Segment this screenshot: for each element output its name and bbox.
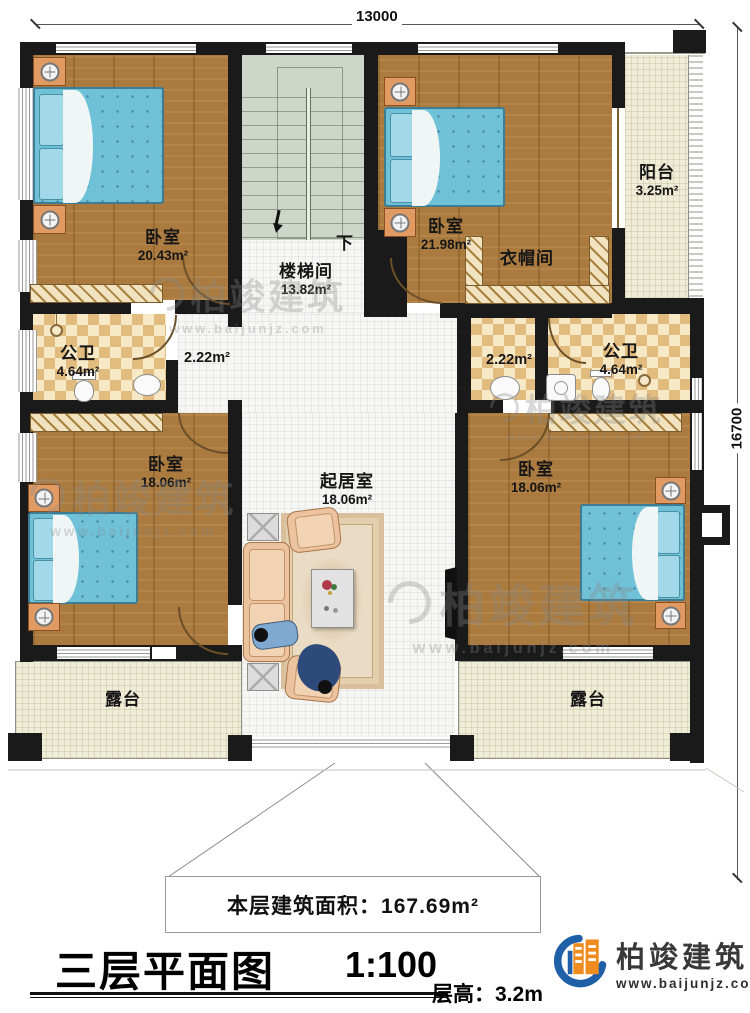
lamp-icon <box>35 489 54 508</box>
nightstand <box>33 57 66 86</box>
side-table <box>247 663 279 691</box>
window-top-left <box>56 44 196 53</box>
door-bathroom-left <box>133 315 177 360</box>
label-corridor-left: 2.22m² <box>184 350 230 367</box>
nightstand <box>384 208 416 237</box>
room-name: 楼梯间 <box>279 262 333 282</box>
wall-hall-right <box>457 313 471 413</box>
room-name: 露台 <box>570 690 606 710</box>
pillow <box>657 511 680 554</box>
room-name: 卧室 <box>141 455 191 475</box>
room-name: 公卫 <box>57 344 100 364</box>
lamp-icon <box>35 608 54 627</box>
nightstand <box>655 602 686 629</box>
balcony-sliding-door <box>617 108 619 228</box>
lamp-icon <box>391 82 410 101</box>
table-deco <box>324 606 329 611</box>
window-bottom-right <box>563 647 653 659</box>
label-bedroom-top-right: 卧室 21.98m² <box>421 217 471 253</box>
toilet-left-bowl <box>74 380 94 402</box>
room-area: 4.64m² <box>57 364 100 380</box>
label-balcony: 阳台 3.25m² <box>636 163 679 199</box>
lamp-icon <box>40 210 59 229</box>
lamp-icon <box>661 606 680 625</box>
company-website: www.baijunjz.com <box>616 976 750 991</box>
wall-bathleft-bottom <box>20 400 178 413</box>
window-left-4 <box>16 433 37 482</box>
floor-plan: 卧室 20.43m² 楼梯间 13.82m² 下 卧室 21.98m² 衣帽间 … <box>0 0 750 1013</box>
floor-area-box: 本层建筑面积：167.69m² <box>165 876 541 933</box>
room-area: 2.22m² <box>486 352 532 369</box>
wardrobe-bedroomtl <box>30 284 163 303</box>
sheet-fold <box>412 110 440 206</box>
balcony-corner-post <box>673 30 706 53</box>
label-corridor-right: 2.22m² <box>486 352 532 369</box>
room-name: 卧室 <box>421 217 471 237</box>
bed-bottom-right <box>580 504 685 601</box>
wall-under-balcony <box>612 298 704 314</box>
title-underline <box>30 992 448 998</box>
threshold-bottom-left <box>152 647 176 659</box>
window-right <box>692 378 702 470</box>
wall-bedroombl-right-b <box>228 650 242 661</box>
lamp-icon <box>391 213 410 232</box>
wardrobe-bedroombl <box>30 413 163 432</box>
pillow <box>39 94 64 146</box>
armchair-cushion <box>294 513 336 549</box>
company-name: 柏竣建筑 <box>616 934 750 976</box>
room-area: 21.98m² <box>421 237 471 253</box>
lamp-icon <box>40 62 59 81</box>
nightstand <box>28 484 60 512</box>
floor-area-text: 本层建筑面积：167.69m² <box>227 890 479 920</box>
room-area: 3.25m² <box>636 183 679 199</box>
toilet-right-bowl <box>592 377 610 401</box>
company-logo: 柏竣建筑 www.baijunjz.com <box>548 933 750 991</box>
room-area: 18.06m² <box>320 492 374 508</box>
room-area: 4.64m² <box>600 362 643 378</box>
stair-arrow-head <box>271 223 283 234</box>
pillow <box>39 148 64 200</box>
wall-bedroomtr-right-a <box>612 55 625 108</box>
washing-machine-drum <box>554 381 568 395</box>
balcony-right-wall <box>688 55 703 300</box>
nightstand <box>28 603 60 631</box>
nightstand <box>33 205 66 234</box>
wall-bathright-bottom-a <box>457 400 503 413</box>
plan-scale: 1:100 <box>345 944 437 986</box>
label-bedroom-top-left: 卧室 20.43m² <box>138 228 188 264</box>
dimension-height: 16700 <box>728 404 745 454</box>
window-top-right <box>418 44 558 53</box>
room-area: 13.82m² <box>279 282 333 298</box>
stair-direction-label: 下 <box>336 229 353 254</box>
room-name: 阳台 <box>636 163 679 183</box>
window-top-stairwell <box>266 44 352 53</box>
label-bedroom-bottom-right: 卧室 18.06m² <box>511 460 561 496</box>
person-head <box>254 628 268 642</box>
sink-left <box>133 374 161 396</box>
sheet-fold <box>63 90 93 203</box>
sheet-fold <box>632 507 658 600</box>
bathleft-lamp-cord <box>56 314 57 325</box>
room-name: 卧室 <box>511 460 561 480</box>
stair-rail <box>306 88 311 240</box>
wardrobe-bedroombr <box>548 413 682 432</box>
room-name: 起居室 <box>320 472 374 492</box>
nightstand <box>384 77 416 106</box>
bed-top-left <box>33 87 164 204</box>
wall-bedroomtr-right-b <box>612 228 625 300</box>
label-cloakroom: 衣帽间 <box>500 249 554 269</box>
company-logo-icon <box>548 933 610 991</box>
side-table <box>247 513 279 541</box>
person-seated-head <box>318 680 332 694</box>
room-name: 公卫 <box>600 342 643 362</box>
pillow <box>390 113 414 157</box>
room-name: 衣帽间 <box>500 249 554 269</box>
pillow <box>390 159 414 203</box>
wall-bathright-bottom-b <box>551 400 703 413</box>
dimension-width: 13000 <box>352 8 402 25</box>
sheet-fold <box>53 515 79 603</box>
room-area: 18.06m² <box>141 475 191 491</box>
label-living-room: 起居室 18.06m² <box>320 472 374 508</box>
armchair-top <box>286 506 343 554</box>
sink-right-vanity <box>490 376 520 400</box>
wall-stair-left <box>228 42 242 327</box>
wall-right-protrusion-inner <box>702 513 722 537</box>
sofa-cushion <box>249 549 285 601</box>
bathleft-lamp <box>50 324 63 337</box>
room-name: 露台 <box>105 690 141 710</box>
label-bedroom-bottom-left: 卧室 18.06m² <box>141 455 191 491</box>
coffee-table <box>311 569 354 628</box>
flower-vase <box>322 580 332 590</box>
label-stairwell: 楼梯间 13.82m² <box>279 262 333 298</box>
room-area: 20.43m² <box>138 248 188 264</box>
label-bathroom-right: 公卫 4.64m² <box>600 342 643 378</box>
floor-height-label: 层高：3.2m <box>432 978 543 1008</box>
window-bottom-left <box>57 647 150 659</box>
window-left-3 <box>16 330 37 392</box>
bed-top-right <box>384 107 505 207</box>
wall-bedroombl-right-a <box>228 400 242 605</box>
nightstand <box>655 477 686 504</box>
label-bathroom-left: 公卫 4.64m² <box>57 344 100 380</box>
label-terrace-left: 露台 <box>105 690 141 710</box>
wall-bathleft-right <box>166 360 178 402</box>
tv <box>445 567 457 640</box>
cloakroom-wardrobe-bottom <box>465 285 610 304</box>
bed-bottom-left <box>28 512 138 604</box>
label-terrace-right: 露台 <box>570 690 606 710</box>
room-area: 2.22m² <box>184 350 230 367</box>
room-area: 18.06m² <box>511 480 561 496</box>
lamp-icon <box>661 481 680 500</box>
wall-stair-right <box>364 42 378 317</box>
plan-title: 三层平面图 <box>55 938 275 999</box>
pillow <box>657 555 680 598</box>
room-name: 卧室 <box>138 228 188 248</box>
